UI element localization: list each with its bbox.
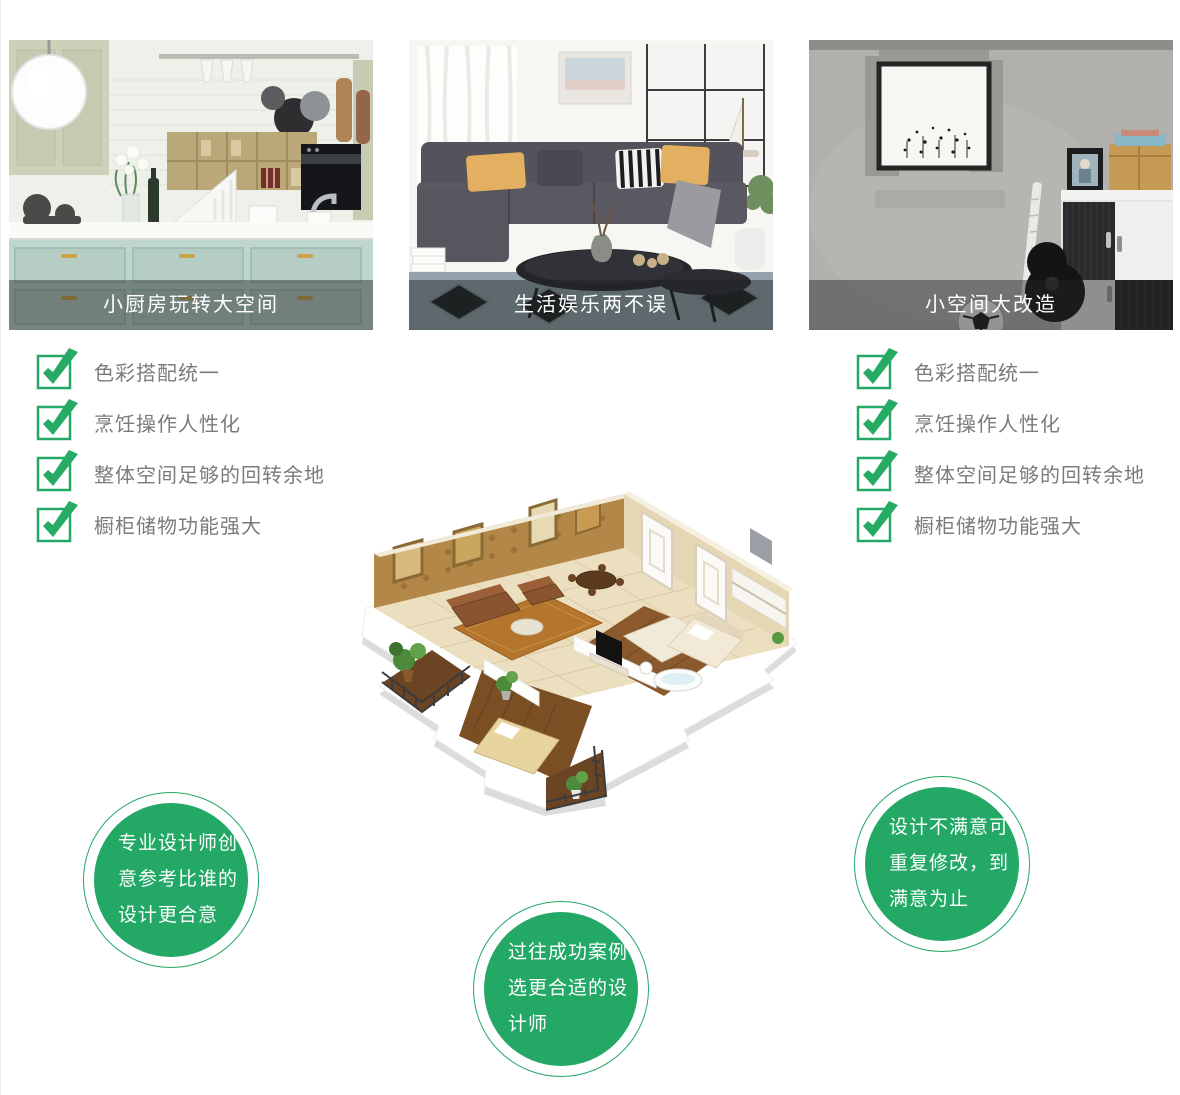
checklist-item-label: 橱柜储物功能强大 bbox=[94, 510, 262, 539]
card-small-space[interactable]: 小空间大改造 bbox=[809, 40, 1173, 330]
badge-line: 设计更合意 bbox=[118, 898, 248, 934]
badge-line: 选更合适的设 bbox=[508, 971, 638, 1007]
checkbox-check-icon bbox=[856, 397, 900, 441]
card-kitchen[interactable]: 小厨房玩转大空间 bbox=[9, 40, 373, 330]
checklist-left: 色彩搭配统一 烹饪操作人性化 整体空间足够的回转余地 橱柜储物功能强大 bbox=[36, 352, 366, 556]
checklist-item-label: 整体空间足够的回转余地 bbox=[94, 459, 325, 488]
checklist-item-label: 烹饪操作人性化 bbox=[914, 408, 1061, 437]
badge-line: 意参考比谁的 bbox=[118, 862, 248, 898]
checklist-item: 整体空间足够的回转余地 bbox=[856, 454, 1180, 492]
checkbox-check-icon bbox=[36, 448, 80, 492]
badge-line: 满意为止 bbox=[889, 882, 1019, 918]
checklist-item-label: 橱柜储物功能强大 bbox=[914, 510, 1082, 539]
checklist-item: 橱柜储物功能强大 bbox=[856, 505, 1180, 543]
badge-circle: 过往成功案例 选更合适的设 计师 bbox=[484, 912, 638, 1066]
badge-past-cases: 过往成功案例 选更合适的设 计师 bbox=[473, 901, 649, 1077]
checkbox-check-icon bbox=[856, 346, 900, 390]
checklist-item: 橱柜储物功能强大 bbox=[36, 505, 366, 543]
checklist-item-label: 色彩搭配统一 bbox=[94, 357, 220, 386]
checklist-item: 色彩搭配统一 bbox=[856, 352, 1180, 390]
checkbox-check-icon bbox=[856, 448, 900, 492]
promo-page: 小厨房玩转大空间 bbox=[0, 0, 1180, 1095]
card-living-room[interactable]: 生活娱乐两不误 bbox=[409, 40, 773, 330]
checklist-item-label: 色彩搭配统一 bbox=[914, 357, 1040, 386]
checkbox-check-icon bbox=[36, 346, 80, 390]
checkbox-check-icon bbox=[856, 499, 900, 543]
floorplan-illustration bbox=[334, 478, 796, 816]
checklist-item: 烹饪操作人性化 bbox=[856, 403, 1180, 441]
badge-designer-ideas: 专业设计师创 意参考比谁的 设计更合意 bbox=[83, 792, 259, 968]
badge-line: 计师 bbox=[508, 1007, 638, 1043]
badge-circle: 专业设计师创 意参考比谁的 设计更合意 bbox=[94, 803, 248, 957]
badge-line: 专业设计师创 bbox=[118, 826, 248, 862]
checklist-item: 烹饪操作人性化 bbox=[36, 403, 366, 441]
card-caption: 小空间大改造 bbox=[809, 280, 1173, 330]
badge-line: 重复修改，到 bbox=[889, 846, 1019, 882]
checkbox-check-icon bbox=[36, 499, 80, 543]
card-caption: 生活娱乐两不误 bbox=[409, 280, 773, 330]
badge-line: 设计不满意可 bbox=[889, 810, 1019, 846]
badge-line: 过往成功案例 bbox=[508, 935, 638, 971]
card-caption: 小厨房玩转大空间 bbox=[9, 280, 373, 330]
checklist-right: 色彩搭配统一 烹饪操作人性化 整体空间足够的回转余地 橱柜储物功能强大 bbox=[856, 352, 1180, 556]
checkbox-check-icon bbox=[36, 397, 80, 441]
checklist-item: 色彩搭配统一 bbox=[36, 352, 366, 390]
badge-circle: 设计不满意可 重复修改，到 满意为止 bbox=[865, 787, 1019, 941]
checklist-item-label: 烹饪操作人性化 bbox=[94, 408, 241, 437]
checklist-item-label: 整体空间足够的回转余地 bbox=[914, 459, 1145, 488]
badge-unlimited-revisions: 设计不满意可 重复修改，到 满意为止 bbox=[854, 776, 1030, 952]
checklist-item: 整体空间足够的回转余地 bbox=[36, 454, 366, 492]
